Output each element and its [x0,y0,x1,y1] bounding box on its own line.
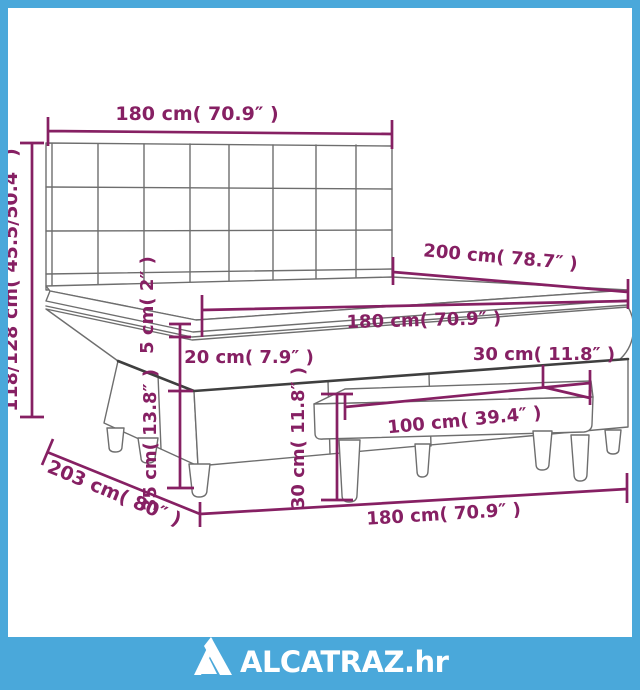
dim-mattress-height-label: 20 cm( 7.9″ ) [184,347,314,368]
footer-brand-text: ALCATRAZ.hr [240,645,450,679]
dim-total-length-label: 203 cm( 80″ ) [44,456,184,531]
dim-headboard-width-label: 180 cm( 70.9″ ) [115,103,278,125]
bench-leg [533,431,552,470]
bench-leg [571,435,589,481]
product-dimension-diagram-page: 180 cm( 70.9″ ) 118/128 cm( 45.5/50.4″ )… [0,0,640,690]
dim-mattress-width-label: 180 cm( 70.9″ ) [346,308,501,333]
dim-headboard-width: 180 cm( 70.9″ ) [48,103,392,149]
bed-leg [107,428,124,452]
bed-dimension-diagram: 180 cm( 70.9″ ) 118/128 cm( 45.5/50.4″ )… [0,0,640,690]
dim-bench-height-label: 30 cm( 11.8″ ) [288,367,309,509]
dim-bed-width: 180 cm( 70.9″ ) [200,473,627,530]
bench-leg [415,444,430,477]
bed-leg [189,464,210,497]
footer-banner: ALCATRAZ.hr [0,637,640,690]
bed-leg [605,430,621,454]
headboard-group [46,143,392,290]
dim-topper-height-label: 5 cm( 2″ ) [137,256,158,354]
dim-bed-length-label: 200 cm( 78.7″ ) [422,240,578,274]
dim-bench-depth-label: 30 cm( 11.8″ ) [473,344,615,365]
bench-leg [339,440,360,502]
